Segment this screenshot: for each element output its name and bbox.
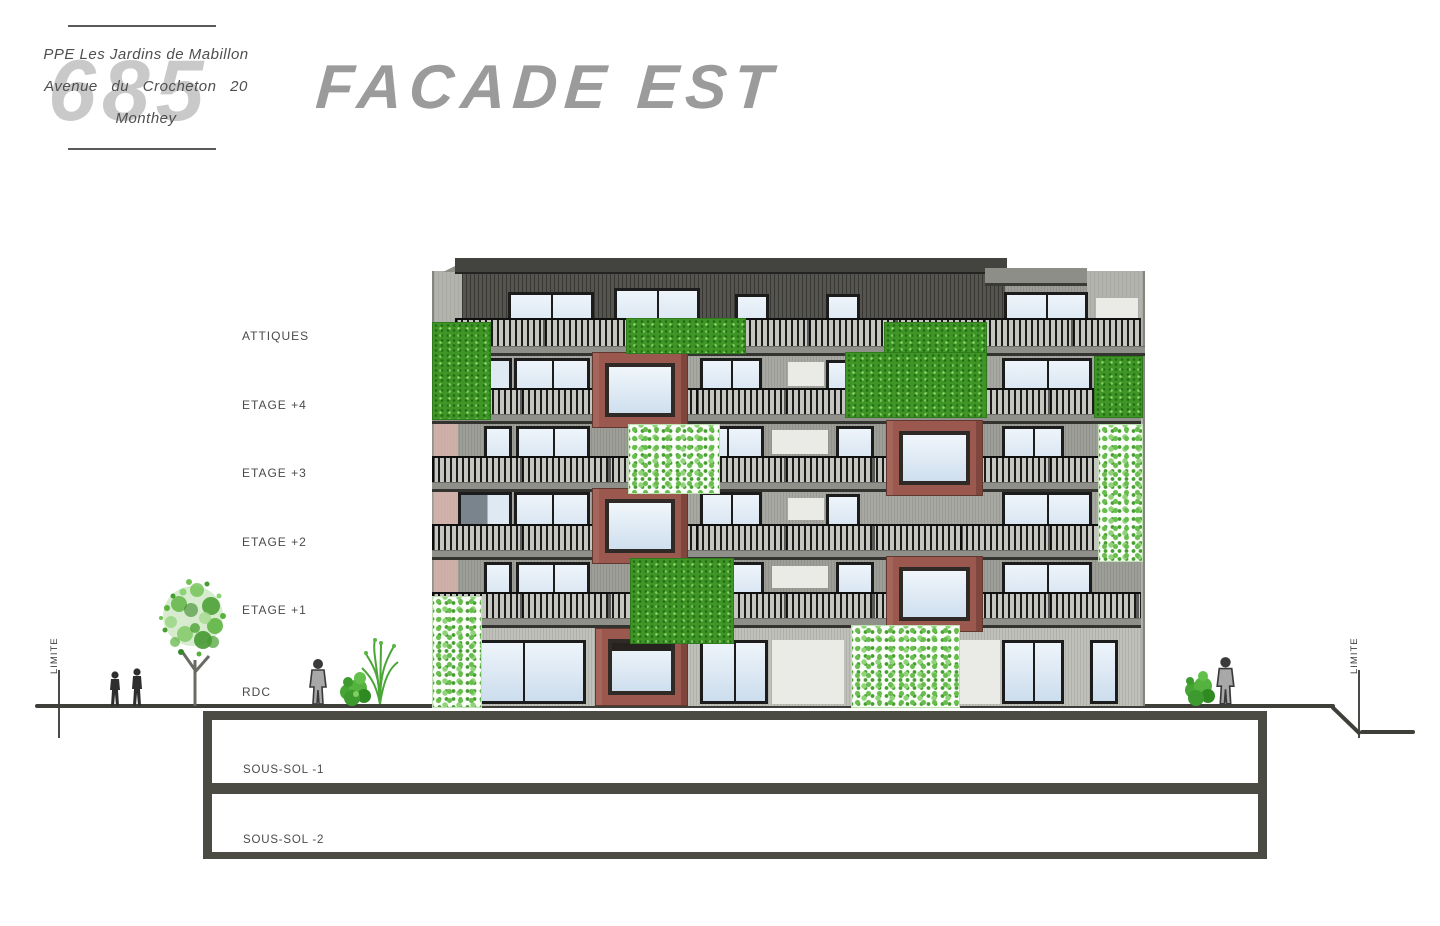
grass-tuft — [360, 634, 400, 711]
window — [899, 431, 970, 485]
window — [608, 639, 675, 695]
floor-slab — [432, 414, 1141, 424]
wall-patch — [772, 566, 828, 588]
person-figure — [305, 658, 331, 711]
wall-patch-salmon — [434, 424, 458, 456]
window — [605, 499, 675, 553]
project-name: PPE Les Jardins de Mabillon — [16, 46, 276, 63]
person-figure — [1212, 656, 1239, 711]
red-window-box — [592, 488, 688, 564]
window — [1002, 640, 1064, 704]
window — [1090, 640, 1118, 704]
green-facade-panel — [630, 558, 734, 644]
green-facade-panel — [432, 322, 491, 420]
floor-label-etage-1: ETAGE +1 — [242, 603, 307, 617]
window — [605, 363, 675, 417]
ground-line-right — [1360, 730, 1415, 734]
floor-slab — [432, 550, 1141, 560]
floor-slab — [432, 482, 1141, 492]
roof-slab — [455, 258, 1007, 274]
balcony-railing — [432, 456, 1141, 484]
green-facade-panel — [884, 322, 987, 356]
red-window-box — [886, 420, 983, 496]
basement-level-2 — [212, 794, 1258, 852]
children-figures — [104, 668, 152, 713]
green-facade-panel — [845, 352, 987, 418]
floor-slab — [432, 618, 1141, 628]
wall-patch-salmon — [434, 560, 458, 592]
limite-right-line — [1358, 670, 1360, 738]
green-facade-panel — [628, 424, 720, 494]
green-facade-panel — [1098, 424, 1143, 562]
roof-canopy — [985, 268, 1087, 286]
tree — [145, 568, 245, 713]
green-facade-panel — [851, 625, 960, 708]
balcony-railing — [432, 388, 1141, 416]
wall-patch — [788, 498, 824, 520]
limite-left-label: LIMITE — [49, 622, 60, 674]
green-facade-panel — [1094, 356, 1143, 418]
floor-slab — [455, 346, 1145, 356]
project-address: Avenue du Crocheton 20 — [16, 78, 276, 95]
floor-label-attiques: ATTIQUES — [242, 329, 309, 343]
floor-label-etage-4: ETAGE +4 — [242, 398, 307, 412]
floor-label-rdc: RDC — [242, 685, 271, 699]
window — [700, 640, 768, 704]
balcony-railing — [432, 524, 1141, 552]
red-window-box — [886, 556, 983, 632]
drawing-title: FACADE EST — [314, 52, 782, 123]
red-window-box — [592, 352, 688, 428]
project-city: Monthey — [16, 110, 276, 127]
wall-patch — [772, 430, 828, 454]
wall-patch — [788, 362, 824, 386]
floor-label-etage-2: ETAGE +2 — [242, 535, 307, 549]
basement-label-1: SOUS-SOL -1 — [243, 764, 324, 776]
wall-patch — [960, 640, 1000, 704]
floor-label-etage-3: ETAGE +3 — [242, 466, 307, 480]
title-rule-top — [68, 25, 216, 27]
balcony-railing — [432, 592, 1141, 620]
green-facade-panel — [626, 318, 746, 354]
limite-right-label: LIMITE — [1349, 622, 1360, 674]
title-rule-bottom — [68, 148, 216, 150]
window — [899, 567, 970, 621]
wall-patch — [772, 640, 844, 704]
green-facade-panel — [432, 596, 482, 708]
terrace-railing — [455, 318, 1141, 348]
facade-drawing: 685 PPE Les Jardins de Mabillon Avenue d… — [0, 0, 1440, 926]
basement-label-2: SOUS-SOL -2 — [243, 834, 324, 846]
basement-level-1 — [212, 720, 1258, 783]
